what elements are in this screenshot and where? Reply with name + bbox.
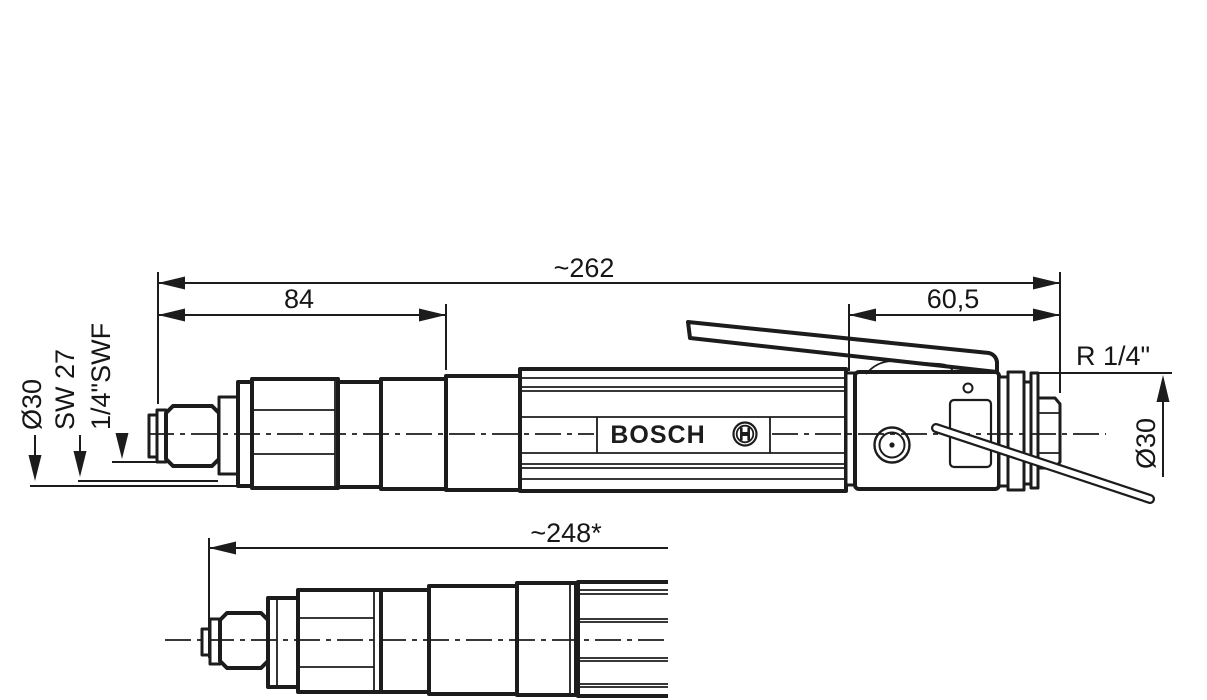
variant-clutch-housing xyxy=(268,583,576,695)
dim-front-length: 84 xyxy=(158,284,446,370)
dim-variant-label: ~248* xyxy=(530,518,602,548)
technical-drawing-page: BOSCH xyxy=(0,0,1207,700)
dia-rear-label: Ø30 xyxy=(1131,418,1161,469)
dim-overall-label: ~262 xyxy=(554,253,615,283)
main-side-view: BOSCH xyxy=(148,322,1150,499)
valve-housing xyxy=(846,361,999,489)
air-inlet-fitting xyxy=(999,372,1060,490)
throttle-lever xyxy=(688,322,997,372)
dim-rear-label: 60,5 xyxy=(927,284,980,314)
variant-motor-housing xyxy=(578,582,668,696)
bottom-partial-view: ~248* xyxy=(165,518,668,696)
pneumatic-screwdriver-drawing: BOSCH xyxy=(0,0,1207,700)
clutch-housing xyxy=(238,376,520,490)
dim-front-label: 84 xyxy=(284,284,314,314)
dim-diameter-rear: Ø30 xyxy=(1131,375,1170,477)
wrench-flat-label: SW 27 xyxy=(50,349,80,430)
bosch-emblem-icon xyxy=(734,423,757,446)
spindle-drive-label: 1/4"SWF xyxy=(86,323,116,430)
bosch-logo-text: BOSCH xyxy=(610,421,705,449)
air-inlet-thread-label: R 1/4" xyxy=(1076,341,1150,371)
dia-front-label: Ø30 xyxy=(17,379,47,430)
motor-housing: BOSCH xyxy=(520,369,846,491)
pin-hole xyxy=(964,384,973,393)
dim-air-inlet: R 1/4" xyxy=(1038,341,1172,373)
